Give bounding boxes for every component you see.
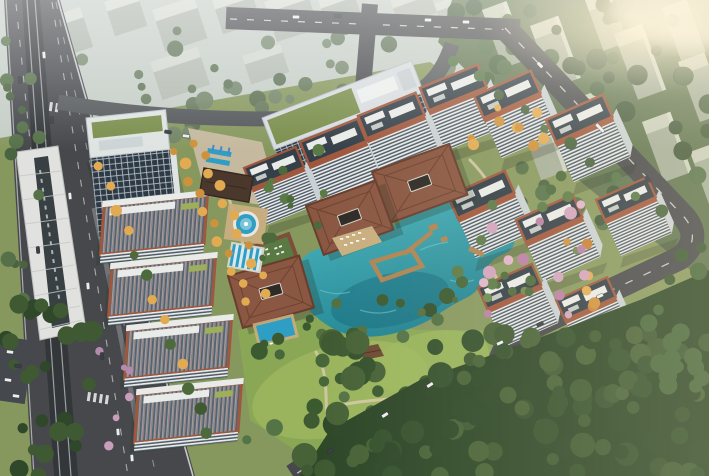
aerial-render [0, 0, 709, 476]
atmosphere [0, 0, 709, 476]
